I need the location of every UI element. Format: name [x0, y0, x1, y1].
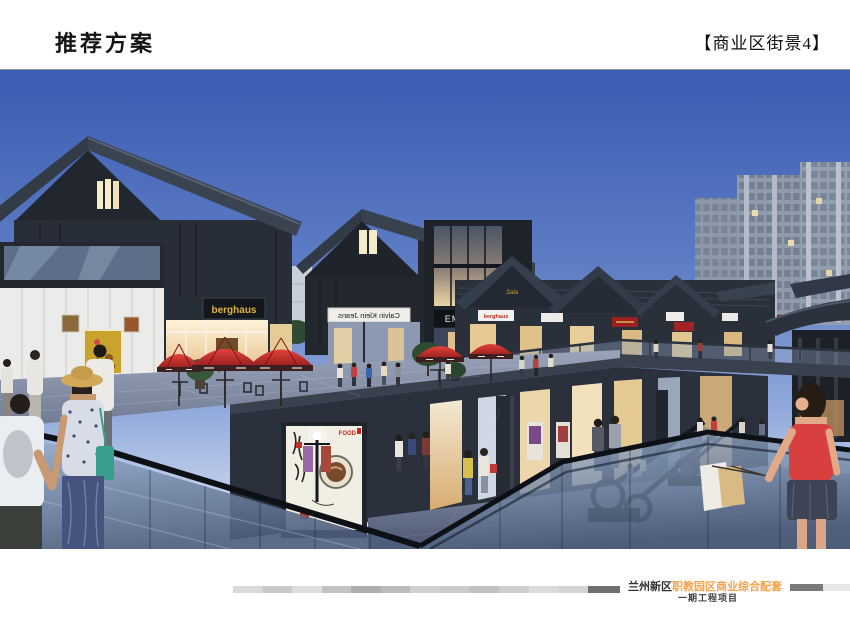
presentation-slide: 推荐方案 【商业区街景4】 — [0, 0, 850, 637]
sign-sala: Sala — [506, 290, 519, 296]
svg-text:berghaus: berghaus — [484, 314, 509, 320]
footer-bar-dark-segment — [588, 586, 620, 593]
svg-text:berghaus: berghaus — [211, 305, 256, 316]
footer-decoration-bar — [233, 586, 588, 593]
sign-calvin-klein: Calvin Klein Jeans — [328, 308, 410, 322]
project-phase: 一期工程项目 — [628, 591, 788, 604]
svg-text:Calvin Klein Jeans: Calvin Klein Jeans — [338, 311, 400, 320]
street-scene-illustration: berghaus — [0, 70, 850, 549]
svg-text:FOOD: FOOD — [339, 431, 357, 437]
architectural-rendering: berghaus — [0, 69, 850, 549]
footer-bar-right-light-segment — [823, 584, 850, 591]
footer-bar-right-dark-segment — [790, 584, 823, 591]
sign-berghaus: berghaus — [203, 298, 265, 319]
page-title: 推荐方案 — [55, 26, 155, 58]
view-label: 【商业区街景4】 — [695, 29, 831, 54]
